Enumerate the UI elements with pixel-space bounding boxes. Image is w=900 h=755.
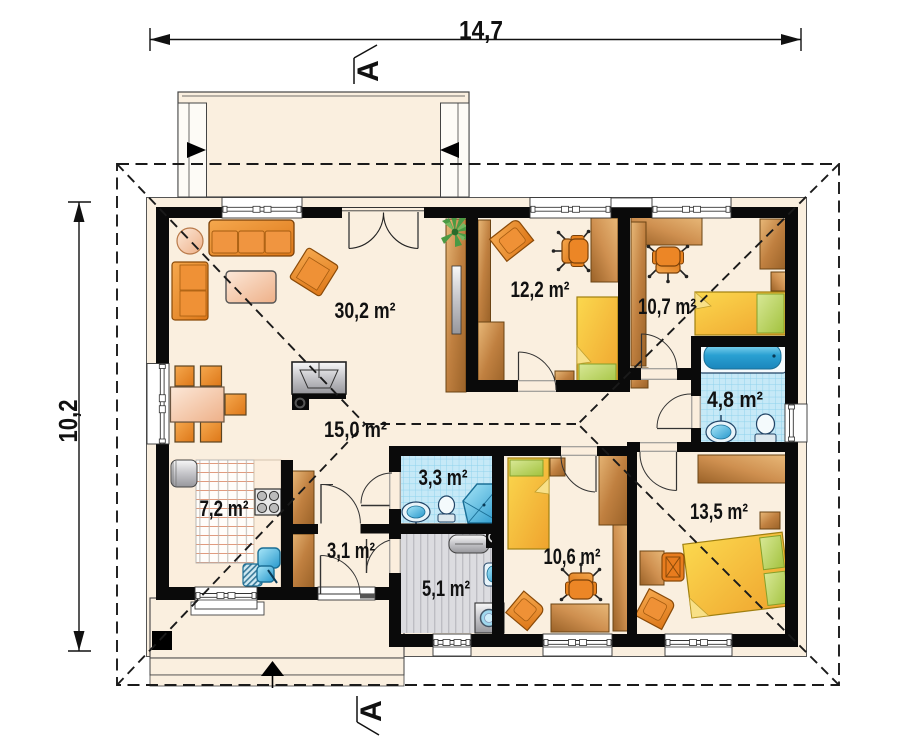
- svg-text:A: A: [355, 700, 388, 722]
- svg-text:12,2 m²: 12,2 m²: [511, 277, 570, 302]
- svg-text:3,3 m²: 3,3 m²: [419, 465, 468, 490]
- svg-text:15,0 m²: 15,0 m²: [324, 417, 387, 442]
- svg-text:30,2 m²: 30,2 m²: [335, 298, 396, 323]
- svg-text:7,2 m²: 7,2 m²: [200, 496, 249, 521]
- svg-text:10,6 m²: 10,6 m²: [544, 544, 601, 569]
- svg-text:14,7: 14,7: [459, 15, 503, 45]
- svg-text:13,5 m²: 13,5 m²: [690, 499, 748, 524]
- svg-text:3,1 m²: 3,1 m²: [327, 538, 375, 563]
- svg-text:A: A: [352, 60, 385, 82]
- svg-text:10,2: 10,2: [53, 400, 83, 443]
- svg-text:4,8 m²: 4,8 m²: [707, 387, 763, 412]
- svg-text:10,7 m²: 10,7 m²: [638, 294, 696, 319]
- svg-text:5,1 m²: 5,1 m²: [422, 576, 470, 601]
